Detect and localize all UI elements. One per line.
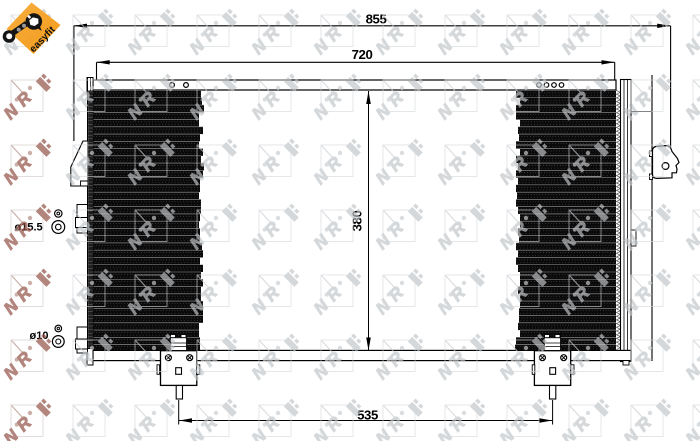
svg-text:720: 720 — [352, 47, 373, 62]
svg-text:535: 535 — [357, 408, 378, 423]
